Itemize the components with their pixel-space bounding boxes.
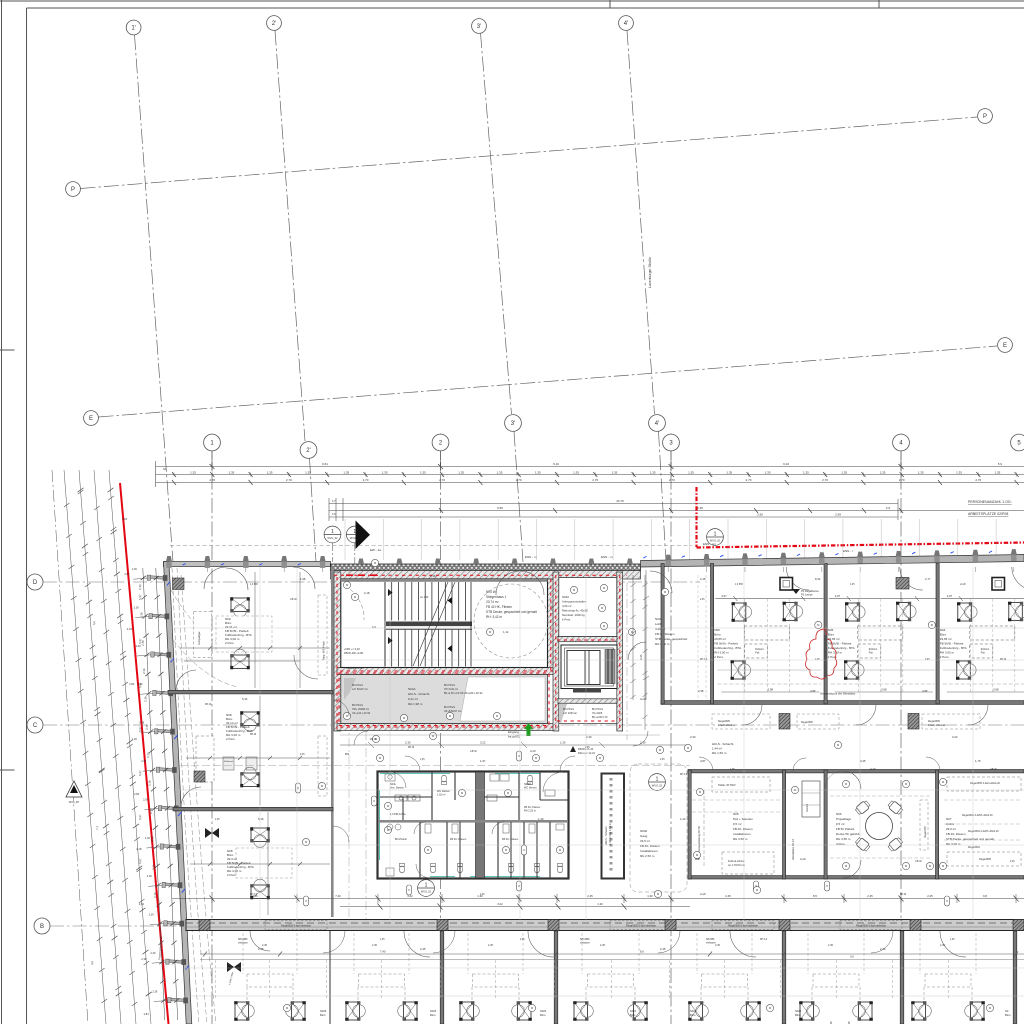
svg-text:5,19: 5,19 xyxy=(258,817,264,821)
svg-text:L4= 50x97 cm: L4= 50x97 cm xyxy=(352,688,368,691)
svg-text:P: P xyxy=(983,114,987,120)
svg-text:1,30: 1,30 xyxy=(560,741,566,745)
svg-text:Tablar i.B.Tb03: Tablar i.B.Tb03 xyxy=(718,783,736,787)
svg-text:3,07: 3,07 xyxy=(721,594,727,598)
svg-text:Büro: Büro xyxy=(320,1013,326,1017)
svg-text:FB 40- Fliesen: FB 40- Fliesen xyxy=(946,832,966,836)
svg-text:2,39: 2,39 xyxy=(134,606,139,609)
svg-text:N0: N0 xyxy=(1005,1009,1009,1013)
svg-text:4,7: 4,7 xyxy=(332,500,336,503)
svg-text:IH+ 0926: IH+ 0926 xyxy=(592,712,603,715)
svg-text:2,45: 2,45 xyxy=(700,577,706,581)
svg-text:ARBEITSPLÄTZE 02/P08: ARBEITSPLÄTZE 02/P08 xyxy=(968,512,1008,516)
svg-text:5,97: 5,97 xyxy=(138,726,142,732)
svg-text:einbauen: einbauen xyxy=(580,942,591,945)
svg-text:9,10: 9,10 xyxy=(783,462,789,466)
svg-text:2,30: 2,30 xyxy=(690,735,696,739)
svg-text:RH:1,98 m: RH:1,98 m xyxy=(408,702,423,706)
svg-text:HKLS - Schacht: HKLS - Schacht xyxy=(408,692,430,696)
svg-text:Büro: Büro xyxy=(540,1013,546,1017)
svg-text:3': 3' xyxy=(477,24,481,30)
svg-text:2,98: 2,98 xyxy=(993,688,999,692)
svg-text:BO-HKLS: BO-HKLS xyxy=(352,704,363,707)
svg-text:Aufzugsvorschalter: Aufzugsvorschalter xyxy=(562,600,586,604)
svg-text:2,45: 2,45 xyxy=(828,944,833,947)
svg-text:Pult.: Pult. xyxy=(755,652,760,655)
svg-text:2,30: 2,30 xyxy=(405,741,411,745)
svg-text:Projektlage: Projektlage xyxy=(836,817,851,821)
svg-text:RH 3,0: RH 3,0 xyxy=(250,894,258,896)
svg-text:1,35: 1,35 xyxy=(190,470,196,474)
svg-text:N06: N06 xyxy=(836,812,842,816)
svg-text:2,39: 2,39 xyxy=(136,645,141,648)
svg-text:2,70: 2,70 xyxy=(592,478,598,482)
svg-text:ENN - sm: ENN - sm xyxy=(703,542,717,546)
svg-text:L/B 40: L/B 40 xyxy=(290,599,297,601)
svg-text:Rollcont.: Rollcont. xyxy=(755,648,764,651)
svg-text:Installationen: Installationen xyxy=(733,832,751,836)
svg-text:1,35: 1,35 xyxy=(726,470,732,474)
svg-text:2,45: 2,45 xyxy=(715,944,720,947)
svg-text:2,18: 2,18 xyxy=(122,517,128,521)
svg-text:1,35: 1,35 xyxy=(535,470,541,474)
svg-text:2,40: 2,40 xyxy=(586,735,592,739)
svg-text:N022: N022 xyxy=(795,1009,802,1013)
svg-text:N04A: N04A xyxy=(408,687,416,691)
svg-text:2,45: 2,45 xyxy=(480,894,485,896)
svg-text:N04 W: N04 W xyxy=(486,590,496,594)
svg-text:BO-Pissoir: BO-Pissoir xyxy=(395,838,407,841)
svg-text:2,70: 2,70 xyxy=(669,478,675,482)
svg-text:ca. PW: ca. PW xyxy=(420,595,429,599)
svg-text:N05: N05 xyxy=(828,628,834,632)
svg-text:Regal-B04 4-4267+49x4,20: Regal-B04 4-4267+49x4,20 xyxy=(968,830,999,833)
svg-text:Büro: Büro xyxy=(714,633,721,637)
svg-text:Regal-B05 6-fach ablesbar: Regal-B05 6-fach ablesbar xyxy=(626,925,656,928)
svg-text:1,35: 1,35 xyxy=(850,584,855,586)
svg-text:9,65: 9,65 xyxy=(497,506,503,510)
svg-text:2,9: 2,9 xyxy=(886,506,891,510)
svg-text:BO-HKLS: BO-HKLS xyxy=(592,708,603,711)
svg-text:2,84: 2,84 xyxy=(144,1012,150,1016)
svg-text:2,45: 2,45 xyxy=(420,947,426,951)
svg-text:2,50: 2,50 xyxy=(757,513,763,517)
svg-text:1,35: 1,35 xyxy=(382,470,388,474)
svg-text:IH= 0x40 cm: IH= 0x40 cm xyxy=(444,688,458,691)
svg-text:Pult.: Pult. xyxy=(869,652,874,655)
svg-text:1,35: 1,35 xyxy=(688,470,694,474)
svg-text:1,40: 1,40 xyxy=(538,817,544,821)
svg-text:2,45: 2,45 xyxy=(372,944,377,947)
svg-text:HKLS - Schacht: HKLS - Schacht xyxy=(712,742,734,746)
svg-text:BC+L020 L70: BC+L020 L70 xyxy=(592,716,608,719)
svg-text:L/B 40: L/B 40 xyxy=(915,861,922,863)
svg-text:STB Decke, gespachtelt und gem: STB Decke, gespachtelt und gemalt xyxy=(486,610,537,614)
svg-text:6 Pers.: 6 Pers. xyxy=(562,618,571,622)
svg-text:1,30: 1,30 xyxy=(597,902,603,906)
svg-text:2,39: 2,39 xyxy=(150,836,154,842)
svg-text:BO-HKLS: BO-HKLS xyxy=(444,706,455,709)
svg-text:1,35: 1,35 xyxy=(950,939,955,941)
svg-text:1,79: 1,79 xyxy=(975,759,981,763)
svg-text:2,39: 2,39 xyxy=(132,568,137,571)
svg-text:einbauen: einbauen xyxy=(238,942,249,945)
svg-text:x4,20: x4,20 xyxy=(870,769,876,771)
svg-text:1,98: 1,98 xyxy=(300,577,306,581)
svg-text:2 Pers.: 2 Pers. xyxy=(714,655,724,659)
svg-text:3,07: 3,07 xyxy=(835,594,841,598)
svg-text:Tepp. B05 4-fach: Tepp. B05 4-fach xyxy=(323,640,326,660)
svg-text:Gesamtlayout der Wandabw.: Gesamtlayout der Wandabw. xyxy=(820,692,856,696)
svg-text:4 Pers.: 4 Pers. xyxy=(836,842,846,846)
svg-text:1,35: 1,35 xyxy=(697,506,703,510)
svg-text:9,8: 9,8 xyxy=(983,894,987,898)
svg-text:2,45: 2,45 xyxy=(867,894,873,898)
svg-text:1,35: 1,35 xyxy=(841,470,847,474)
svg-text:2,45: 2,45 xyxy=(700,599,705,601)
svg-text:RH 3,00 m: RH 3,00 m xyxy=(940,651,955,655)
svg-text:3,22: 3,22 xyxy=(497,902,503,906)
svg-text:Dusche: Dusche xyxy=(806,803,809,812)
svg-text:1,0 PIR: 1,0 PIR xyxy=(250,584,258,586)
svg-text:3,86: 3,86 xyxy=(810,689,816,693)
svg-text:N04: N04 xyxy=(940,628,946,632)
svg-text:IH4+ 29028 cm: IH4+ 29028 cm xyxy=(352,708,369,711)
svg-text:2,77: 2,77 xyxy=(925,577,931,581)
svg-text:1,35: 1,35 xyxy=(918,470,924,474)
svg-text:FB 5h/5t - Parkett: FB 5h/5t - Parkett xyxy=(940,642,964,646)
svg-text:RD+1+= 12,42: RD+1+= 12,42 xyxy=(578,751,596,755)
svg-text:2,39: 2,39 xyxy=(147,780,151,786)
svg-text:2,39: 2,39 xyxy=(151,952,156,955)
svg-text:4-fach ablesbar: 4-fach ablesbar xyxy=(718,724,735,727)
svg-text:1,35: 1,35 xyxy=(994,470,1000,474)
svg-text:2,45: 2,45 xyxy=(300,754,305,756)
svg-text:L/B 40: L/B 40 xyxy=(470,751,477,753)
svg-text:5,9: 5,9 xyxy=(998,462,1003,466)
svg-text:2,18: 2,18 xyxy=(127,627,133,631)
svg-text:2,70: 2,70 xyxy=(975,478,981,482)
svg-text:Vorr. Damen: Vorr. Damen xyxy=(390,787,405,790)
svg-text:6-fach ablesbar: 6-fach ablesbar xyxy=(928,724,945,727)
svg-text:1,30: 1,30 xyxy=(647,894,653,898)
svg-text:D: D xyxy=(33,580,38,586)
svg-text:1,35: 1,35 xyxy=(305,470,311,474)
svg-text:3,6: 3,6 xyxy=(850,955,854,959)
svg-text:4': 4' xyxy=(655,421,659,427)
svg-text:FB 40- Fliesen: FB 40- Fliesen xyxy=(640,844,660,848)
svg-text:L/B 40: L/B 40 xyxy=(990,769,997,771)
svg-text:BK+2,05 x,F0 OK UK+L80 x,F0 90: BK+2,05 x,F0 OK UK+L80 x,F0 90 xyxy=(444,692,483,695)
svg-text:8,6: 8,6 xyxy=(640,950,644,954)
svg-text:23,74 m²: 23,74 m² xyxy=(486,600,499,604)
svg-text:RH: 3,42 m: RH: 3,42 m xyxy=(486,615,502,619)
svg-text:2,45: 2,45 xyxy=(587,894,593,898)
svg-text:FB 40: FB 40 xyxy=(370,739,377,741)
svg-text:33,5 m²: 33,5 m² xyxy=(640,839,650,843)
svg-text:2,39: 2,39 xyxy=(153,892,157,898)
svg-text:1,35: 1,35 xyxy=(267,470,273,474)
svg-text:N024: N024 xyxy=(540,1009,547,1013)
svg-text:#,5 m²: #,5 m² xyxy=(733,822,742,826)
svg-text:2,18: 2,18 xyxy=(141,957,147,961)
svg-text:29,65 m²: 29,65 m² xyxy=(828,637,840,641)
svg-text:2,70: 2,70 xyxy=(822,478,828,482)
svg-text:2,46: 2,46 xyxy=(880,947,886,951)
svg-text:Büro: Büro xyxy=(430,1013,436,1017)
svg-text:1,35: 1,35 xyxy=(380,939,385,941)
svg-text:x4,20: x4,20 xyxy=(800,859,806,861)
svg-text:Büro: Büro xyxy=(795,1013,801,1017)
svg-text:3,22: 3,22 xyxy=(480,741,486,745)
svg-text:1,44 m²: 1,44 m² xyxy=(712,747,722,751)
svg-text:2,45: 2,45 xyxy=(600,944,605,947)
svg-text:#,5 m²: #,5 m² xyxy=(836,822,845,826)
svg-text:Regal-B05 6-fach ablesbar: Regal-B05 6-fach ablesbar xyxy=(856,925,886,928)
svg-text:RH 3,00 m: RH 3,00 m xyxy=(714,651,729,655)
svg-text:3,45: 3,45 xyxy=(860,759,866,763)
svg-text:FBOK-RD:+0,08: FBOK-RD:+0,08 xyxy=(344,651,364,655)
svg-text:2,39: 2,39 xyxy=(138,584,142,590)
svg-text:N05: N05 xyxy=(733,812,739,816)
svg-text:2,18: 2,18 xyxy=(364,591,370,595)
svg-text:5,97: 5,97 xyxy=(138,770,142,776)
svg-text:HKLS - Schacht: HKLS - Schacht xyxy=(604,826,608,845)
svg-text:PERSONENANZAHL 1.OG:: PERSONENANZAHL 1.OG: xyxy=(968,500,1012,504)
svg-text:FB 40- Fliesen: FB 40- Fliesen xyxy=(450,838,467,841)
svg-text:Büro: Büro xyxy=(1005,1013,1011,1017)
svg-text:1,35: 1,35 xyxy=(650,470,656,474)
svg-text:2,45: 2,45 xyxy=(940,944,945,947)
svg-text:2,39: 2,39 xyxy=(143,798,148,801)
svg-text:Büro: Büro xyxy=(690,1013,696,1017)
svg-text:3,07: 3,07 xyxy=(947,594,953,598)
svg-text:2,39: 2,39 xyxy=(149,914,154,917)
svg-text:BO-HKLS: BO-HKLS xyxy=(563,708,574,711)
svg-text:1,35: 1,35 xyxy=(573,470,579,474)
svg-text:2,39: 2,39 xyxy=(145,837,150,840)
svg-text:WC Herren: WC Herren xyxy=(524,787,537,790)
svg-text:1': 1' xyxy=(131,26,135,32)
svg-text:L/2: L/2 xyxy=(372,625,376,629)
svg-text:RH 1,50 m: RH 1,50 m xyxy=(712,751,727,755)
svg-text:N040: N040 xyxy=(640,829,648,833)
svg-text:B05: B05 xyxy=(695,859,700,861)
svg-text:N023: N023 xyxy=(430,1009,437,1013)
svg-text:STB Decke, gespachtelt und gem: STB Decke, gespachtelt und gemalt xyxy=(946,837,994,841)
svg-text:BO-HKLS: BO-HKLS xyxy=(352,684,363,687)
svg-text:Kompaktger.: Kompaktger. xyxy=(198,631,201,645)
svg-text:3,34: 3,34 xyxy=(639,654,643,660)
svg-text:2,45: 2,45 xyxy=(660,759,665,761)
svg-text:2,84: 2,84 xyxy=(129,682,135,686)
svg-text:43,75: 43,75 xyxy=(616,499,624,503)
svg-text:Regal-B05 6-fach ablesbar: Regal-B05 6-fach ablesbar xyxy=(728,925,758,928)
svg-text:Gang: Gang xyxy=(640,834,648,838)
svg-text:5,0: 5,0 xyxy=(92,620,96,625)
svg-text:3,22: 3,22 xyxy=(952,735,958,739)
svg-text:1,0 PIR: 1,0 PIR xyxy=(735,584,743,586)
svg-text:ENN - r: ENN - r xyxy=(843,549,853,553)
svg-text:RH 3,00 m: RH 3,00 m xyxy=(946,842,961,846)
svg-text:1,35: 1,35 xyxy=(880,470,886,474)
svg-text:2,45: 2,45 xyxy=(488,944,493,947)
svg-text:Regal-B04: Regal-B04 xyxy=(968,846,980,849)
svg-text:5,97: 5,97 xyxy=(138,638,142,644)
svg-text:RH 2,20 m: RH 2,20 m xyxy=(524,810,536,813)
svg-text:FB 5h/5t - Parkett: FB 5h/5t - Parkett xyxy=(714,642,738,646)
svg-text:4,00 m²: 4,00 m² xyxy=(562,604,572,608)
svg-text:2,70: 2,70 xyxy=(439,478,445,482)
svg-text:N021: N021 xyxy=(630,1009,637,1013)
svg-text:1,35: 1,35 xyxy=(611,470,617,474)
svg-text:Regal-B04 4-4267+49x4,20: Regal-B04 4-4267+49x4,20 xyxy=(962,814,993,817)
svg-text:BO-HKLS: BO-HKLS xyxy=(444,684,455,687)
svg-text:Nennlast: 1000 kg: Nennlast: 1000 kg xyxy=(562,613,585,617)
svg-text:Büro: Büro xyxy=(630,1013,636,1017)
svg-text:5,97: 5,97 xyxy=(138,814,142,820)
svg-text:ca. 170x70 cm: ca. 170x70 cm xyxy=(728,863,745,867)
svg-text:7,40: 7,40 xyxy=(335,894,341,898)
svg-text:B05: B05 xyxy=(345,754,350,756)
svg-text:RH 2,50 m: RH 2,50 m xyxy=(640,854,655,858)
svg-text:RH 3,0: RH 3,0 xyxy=(760,939,768,941)
svg-text:9,10: 9,10 xyxy=(553,462,559,466)
svg-text:2,98: 2,98 xyxy=(768,688,774,692)
svg-text:Regal-B05 6-fach ablesbar: Regal-B05 6-fach ablesbar xyxy=(281,925,311,928)
svg-text:N024: N024 xyxy=(690,1009,697,1013)
svg-text:B: B xyxy=(40,924,44,930)
svg-text:4,5: 4,5 xyxy=(332,513,336,516)
svg-text:2,84: 2,84 xyxy=(134,792,140,796)
svg-text:Rollcont.: Rollcont. xyxy=(981,648,990,651)
svg-text:N04A: N04A xyxy=(562,595,569,599)
svg-text:FB 40: FB 40 xyxy=(408,747,415,749)
svg-text:1,44 m² RH 1,50 m: 1,44 m² RH 1,50 m xyxy=(608,823,612,845)
svg-text:2,18: 2,18 xyxy=(132,737,138,741)
svg-text:2,70: 2,70 xyxy=(286,478,292,482)
svg-text:4': 4' xyxy=(624,21,628,27)
svg-text:1,35: 1,35 xyxy=(215,819,220,821)
svg-text:1,35: 1,35 xyxy=(497,470,503,474)
svg-text:2': 2' xyxy=(272,21,276,27)
svg-text:x4,20: x4,20 xyxy=(530,751,536,753)
svg-text:8,34: 8,34 xyxy=(815,577,821,581)
svg-text:2,45: 2,45 xyxy=(258,947,264,951)
svg-text:Regal-B05: Regal-B05 xyxy=(718,720,730,723)
svg-text:2,18: 2,18 xyxy=(136,847,142,851)
svg-text:2,70: 2,70 xyxy=(746,478,752,482)
svg-text:3,6: 3,6 xyxy=(90,960,94,965)
svg-text:2,84: 2,84 xyxy=(124,572,130,576)
svg-text:1,35: 1,35 xyxy=(343,470,349,474)
svg-text:Decke 5K gekühlt: Decke 5K gekühlt xyxy=(836,832,860,836)
svg-text:1,14: 1,14 xyxy=(503,630,509,634)
svg-text:UK+530x97 cm: UK+530x97 cm xyxy=(444,710,461,713)
svg-text:FB 40: FB 40 xyxy=(900,894,907,896)
svg-text:3': 3' xyxy=(511,421,515,427)
svg-text:5,34: 5,34 xyxy=(242,697,248,701)
svg-text:Fußbodenhzg - BTA: Fußbodenhzg - BTA xyxy=(940,646,967,650)
svg-text:2,39: 2,39 xyxy=(151,864,155,870)
svg-text:2,98: 2,98 xyxy=(698,689,704,693)
svg-text:2,39: 2,39 xyxy=(141,760,146,763)
svg-text:Peti + Stauram: Peti + Stauram xyxy=(733,817,753,821)
svg-text:1,97: 1,97 xyxy=(480,759,486,763)
svg-text:1,35: 1,35 xyxy=(420,470,426,474)
svg-text:2,39: 2,39 xyxy=(147,875,152,878)
svg-text:2,70: 2,70 xyxy=(209,478,215,482)
svg-text:2 Pers.: 2 Pers. xyxy=(940,655,950,659)
svg-text:FB 40- Fliesen: FB 40- Fliesen xyxy=(655,632,675,636)
svg-text:2,59: 2,59 xyxy=(835,513,841,517)
svg-text:2,45: 2,45 xyxy=(927,894,933,898)
svg-text:ENN - m: ENN - m xyxy=(601,555,613,559)
svg-text:STB Decke, gespachtelt: STB Decke, gespachtelt xyxy=(655,637,687,641)
svg-text:Rahmengr.4c: 40x35: Rahmengr.4c: 40x35 xyxy=(562,609,588,613)
svg-text:29,65 m²: 29,65 m² xyxy=(714,637,726,641)
svg-text:2,45: 2,45 xyxy=(262,944,267,947)
svg-text:2 Pers.: 2 Pers. xyxy=(225,641,235,645)
svg-text:Fußbodenhzg - BTA: Fußbodenhzg - BTA xyxy=(714,646,741,650)
svg-text:ENN - m: ENN - m xyxy=(525,555,537,559)
svg-text:Stiegenhaus 1: Stiegenhaus 1 xyxy=(486,595,507,599)
svg-text:1,35: 1,35 xyxy=(458,470,464,474)
svg-text:x4,20: x4,20 xyxy=(960,584,966,586)
svg-text:2,70: 2,70 xyxy=(363,478,369,482)
svg-text:1,52 m²: 1,52 m² xyxy=(437,794,446,797)
svg-text:FB 40- Fliesen: FB 40- Fliesen xyxy=(733,827,753,831)
svg-text:1,35: 1,35 xyxy=(730,769,735,771)
svg-text:3,86: 3,86 xyxy=(922,689,928,693)
svg-text:Eingang: Eingang xyxy=(508,730,519,734)
svg-text:E: E xyxy=(1003,343,1007,349)
svg-text:1,0 PIR:12%a: 1,0 PIR:12%a xyxy=(390,813,406,816)
svg-text:Fußma.schine: Fußma.schine xyxy=(728,859,745,863)
svg-text:8,5: 8,5 xyxy=(813,894,817,898)
svg-text:2,45: 2,45 xyxy=(660,947,666,951)
svg-text:P: P xyxy=(71,187,75,193)
svg-text:Werkbank: Werkbank xyxy=(224,761,233,763)
svg-text:1,35: 1,35 xyxy=(765,470,771,474)
svg-text:Rollcont.: Rollcont. xyxy=(869,648,878,651)
svg-text:x4,20: x4,20 xyxy=(700,894,706,896)
svg-text:2,45: 2,45 xyxy=(1010,861,1015,863)
svg-text:29,65 m²: 29,65 m² xyxy=(940,637,952,641)
svg-text:Regal-B05: Regal-B05 xyxy=(801,721,813,724)
svg-text:2,39: 2,39 xyxy=(143,696,147,702)
svg-text:4,87: 4,87 xyxy=(700,759,706,763)
svg-text:FB 5h Parkett: FB 5h Parkett xyxy=(836,827,855,831)
svg-text:RH 3,50 m: RH 3,50 m xyxy=(836,837,851,841)
svg-text:1,35: 1,35 xyxy=(228,470,234,474)
svg-text:2 Pers.: 2 Pers. xyxy=(227,873,237,877)
svg-text:EW - 1a: EW - 1a xyxy=(370,548,381,552)
svg-text:7,4: 7,4 xyxy=(95,825,99,830)
svg-text:2,39: 2,39 xyxy=(138,683,143,686)
svg-text:Regal-B05: Regal-B05 xyxy=(928,720,940,723)
svg-text:WVG_B7: WVG_B7 xyxy=(69,801,80,804)
svg-text:5,97: 5,97 xyxy=(138,858,142,864)
svg-text:2,45: 2,45 xyxy=(585,747,590,749)
svg-text:Regal-B05: Regal-B05 xyxy=(979,858,991,861)
svg-text:2,39: 2,39 xyxy=(139,722,144,725)
svg-text:Büro: Büro xyxy=(940,633,947,637)
svg-text:E: E xyxy=(89,416,93,422)
svg-text:29,0 m²: 29,0 m² xyxy=(946,827,956,831)
svg-text:2,45: 2,45 xyxy=(725,894,731,898)
svg-text:N023: N023 xyxy=(320,1009,327,1013)
